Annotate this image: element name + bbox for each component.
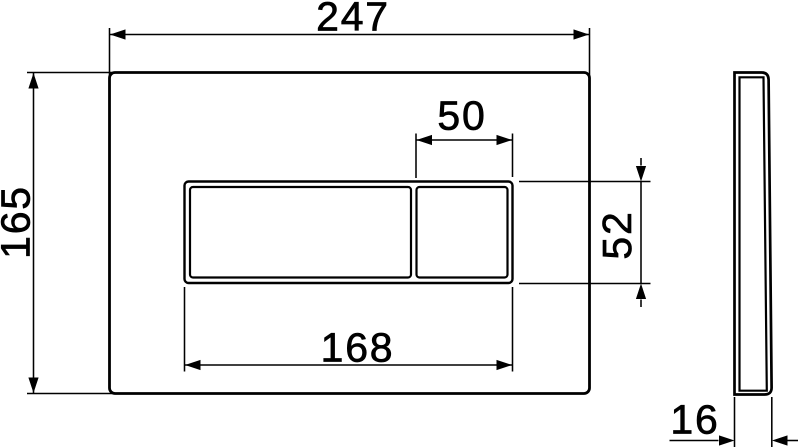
- svg-text:50: 50: [437, 93, 486, 139]
- svg-text:247: 247: [316, 0, 390, 40]
- svg-text:16: 16: [670, 397, 719, 443]
- svg-text:168: 168: [321, 325, 395, 371]
- svg-text:52: 52: [594, 210, 640, 259]
- svg-text:165: 165: [0, 185, 39, 259]
